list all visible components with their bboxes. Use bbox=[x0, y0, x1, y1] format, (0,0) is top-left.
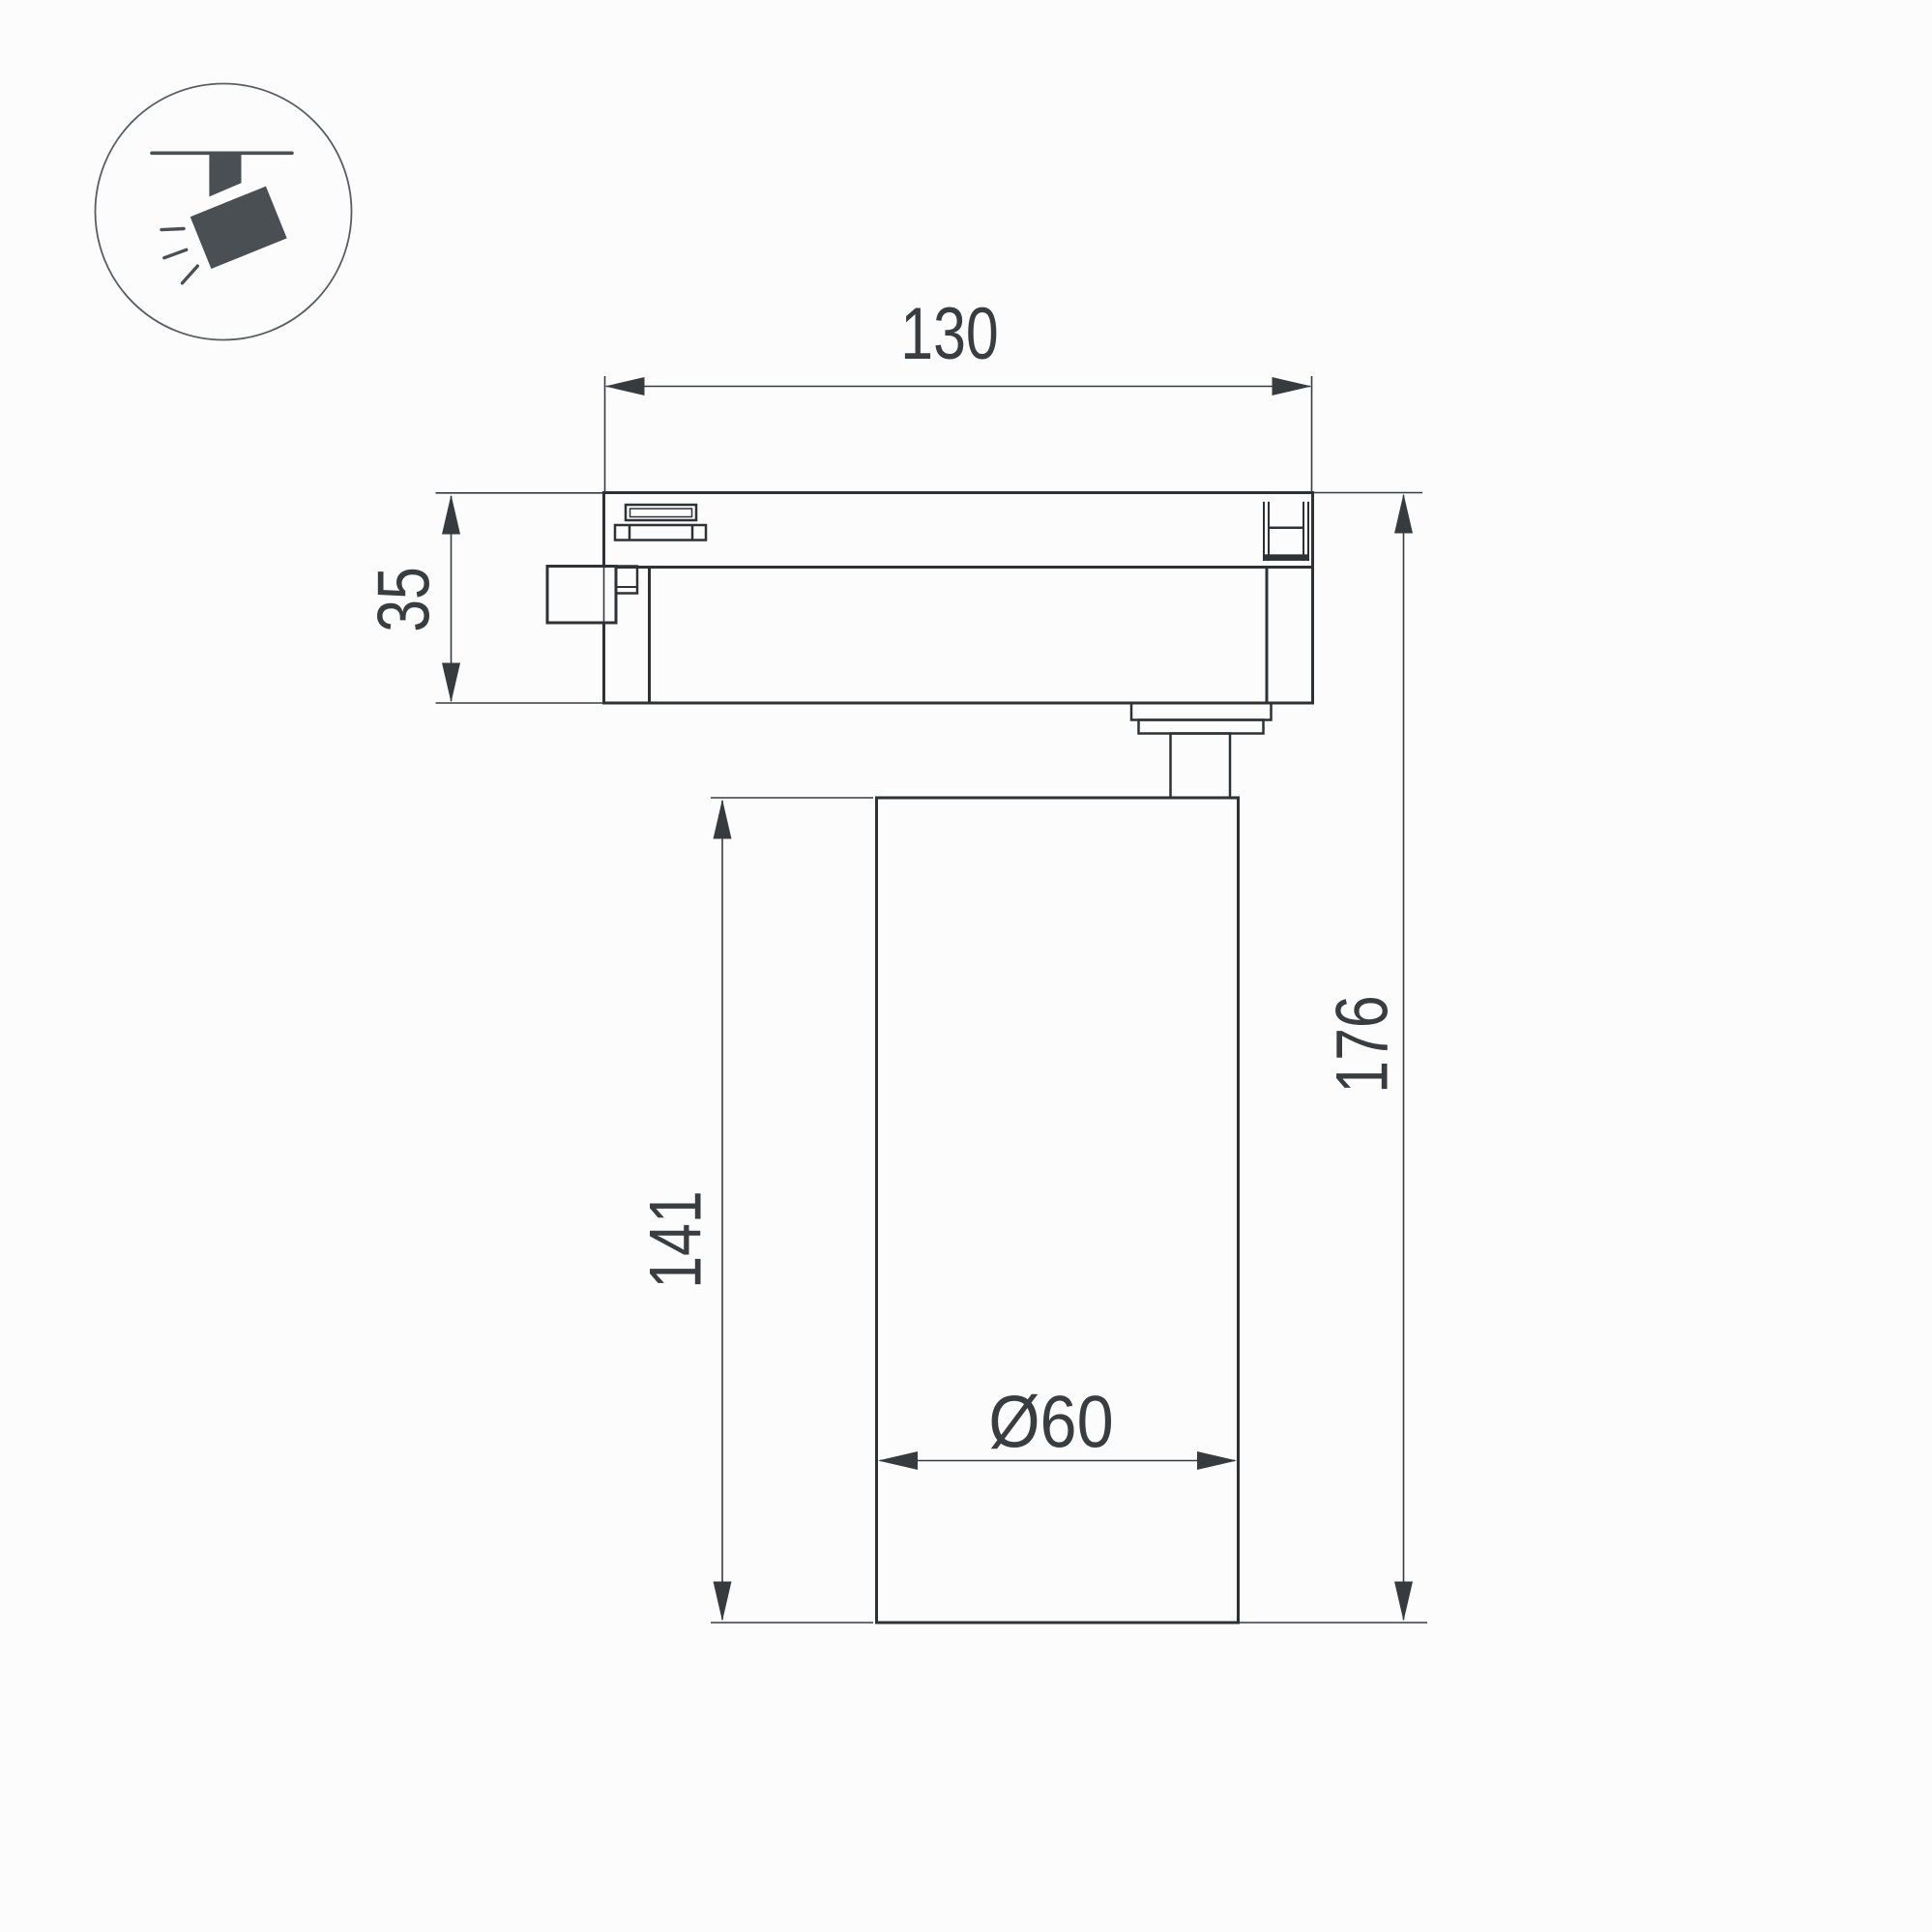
svg-text:176: 176 bbox=[1321, 995, 1403, 1093]
svg-text:Ø60: Ø60 bbox=[988, 1382, 1113, 1463]
svg-text:35: 35 bbox=[363, 567, 445, 632]
svg-text:130: 130 bbox=[900, 293, 998, 375]
svg-text:141: 141 bbox=[634, 1190, 717, 1288]
